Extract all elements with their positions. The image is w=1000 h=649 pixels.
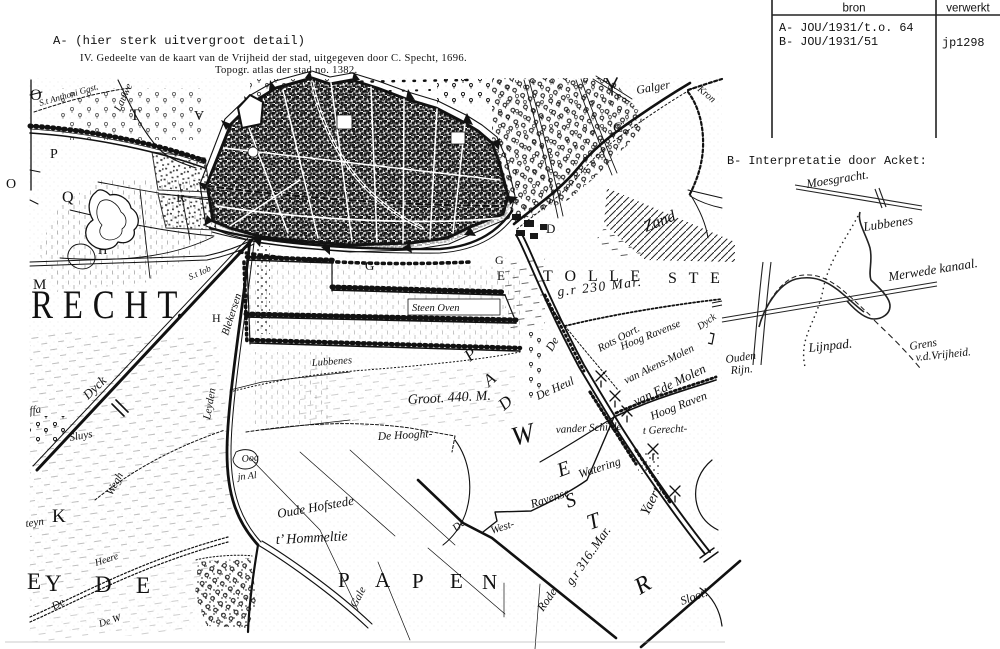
svg-text:Y: Y xyxy=(45,571,62,596)
svg-text:P: P xyxy=(50,147,58,162)
svg-text:G: G xyxy=(365,258,374,273)
svg-text:jn Al: jn Al xyxy=(235,470,257,483)
svg-text:Topogr. atlas der stad no. 138: Topogr. atlas der stad no. 1382. xyxy=(215,65,357,76)
svg-text:IV. Gedeelte van de kaart van: IV. Gedeelte van de kaart van de Vrijhei… xyxy=(80,53,467,64)
svg-text:O: O xyxy=(30,87,42,104)
svg-text:t Gerecht-: t Gerecht- xyxy=(643,423,688,437)
svg-text:D: D xyxy=(546,221,555,236)
svg-text:N: N xyxy=(482,570,497,594)
svg-text:B- JOU/1931/51: B- JOU/1931/51 xyxy=(779,35,878,49)
svg-text:verwerkt: verwerkt xyxy=(946,3,990,15)
svg-text:A: A xyxy=(375,568,391,592)
svg-text:E: E xyxy=(136,573,150,598)
svg-text:K: K xyxy=(52,506,66,527)
svg-text:P: P xyxy=(412,569,424,593)
svg-text:G: G xyxy=(495,253,504,267)
svg-text:R E C H T.: R E C H T. xyxy=(31,282,185,327)
svg-text:V: V xyxy=(194,109,204,124)
svg-text:B- Interpretatie door Acket:: B- Interpretatie door Acket: xyxy=(727,154,927,168)
svg-text:ffa: ffa xyxy=(29,403,43,417)
svg-text:E: E xyxy=(450,569,463,593)
svg-text:bron: bron xyxy=(842,3,865,15)
svg-text:T: T xyxy=(130,107,140,124)
svg-text:Rijn.: Rijn. xyxy=(729,363,753,377)
svg-text:P: P xyxy=(338,568,350,592)
svg-text:D: D xyxy=(95,572,112,597)
svg-text:O: O xyxy=(6,177,16,192)
svg-text:E: E xyxy=(497,268,505,283)
svg-text:H: H xyxy=(212,311,221,325)
svg-text:S T E: S T E xyxy=(668,270,724,287)
svg-text:E: E xyxy=(27,569,41,594)
svg-text:Steen Oven: Steen Oven xyxy=(412,303,460,314)
svg-text:A- (hier sterk uitvergroot det: A- (hier sterk uitvergroot detail) xyxy=(53,34,305,48)
svg-text:A- JOU/1931/t.o. 64: A- JOU/1931/t.o. 64 xyxy=(779,21,914,35)
svg-text:C: C xyxy=(613,120,623,136)
svg-text:jp1298: jp1298 xyxy=(942,36,984,50)
